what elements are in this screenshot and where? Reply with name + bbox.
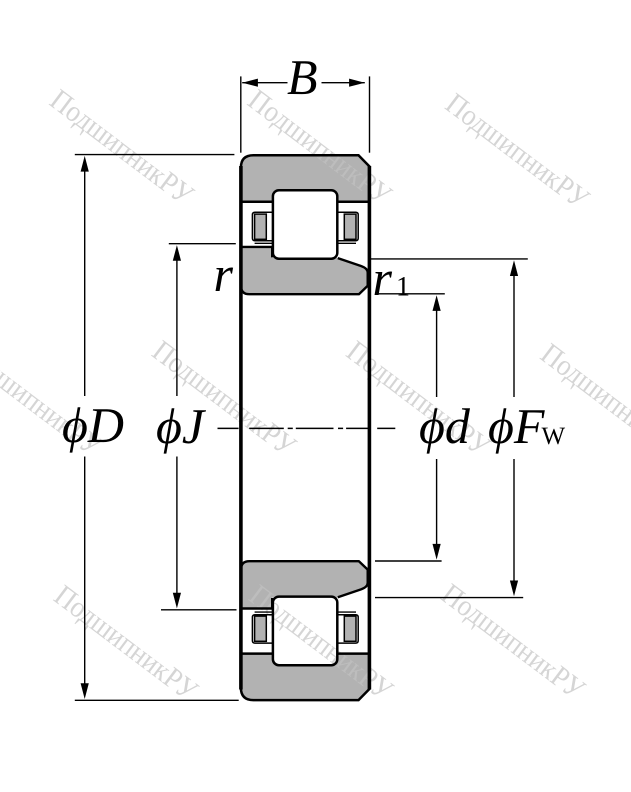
svg-text:ϕJ: ϕJ xyxy=(156,398,207,454)
svg-text:ϕd: ϕd xyxy=(419,398,471,454)
svg-text:r: r xyxy=(373,250,393,306)
svg-text:W: W xyxy=(542,423,566,450)
svg-text:B: B xyxy=(287,49,318,105)
svg-text:1: 1 xyxy=(396,272,410,303)
svg-text:ϕF: ϕF xyxy=(488,398,545,454)
svg-text:ϕD: ϕD xyxy=(62,397,124,453)
svg-text:r: r xyxy=(214,246,234,302)
